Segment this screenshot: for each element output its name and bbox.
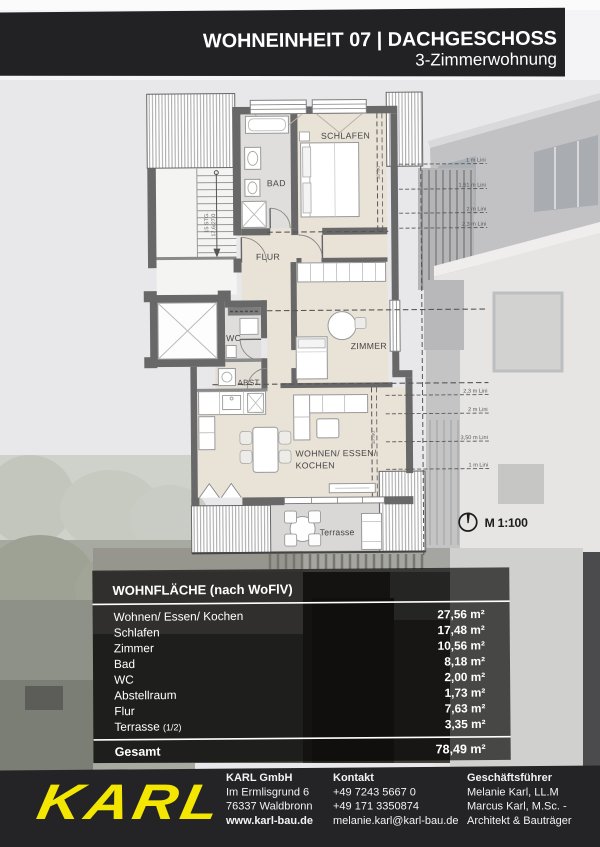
svg-text:Terrasse: Terrasse — [320, 527, 355, 537]
svg-text:Abstellraum: Abstellraum — [114, 688, 177, 702]
svg-text:35°/90: 35°/90 — [371, 431, 376, 445]
svg-text:8,18 m²: 8,18 m² — [444, 654, 485, 668]
svg-text:Melanie Karl, LL.M: Melanie Karl, LL.M — [467, 786, 559, 798]
svg-text:Terrasse (1/2): Terrasse (1/2) — [114, 719, 181, 734]
svg-text:BAD: BAD — [267, 178, 286, 188]
svg-text:WOHNEINHEIT 07 | DACHGESCHOSS: WOHNEINHEIT 07 | DACHGESCHOSS — [203, 28, 557, 53]
svg-text:15 STG.: 15 STG. — [204, 212, 210, 233]
svg-text:Zimmer: Zimmer — [114, 641, 154, 655]
svg-text:1,73 m²: 1,73 m² — [445, 686, 486, 700]
svg-text:17,48 m²: 17,48 m² — [437, 623, 484, 637]
svg-text:Bad: Bad — [114, 657, 135, 671]
svg-text:FLUR: FLUR — [256, 252, 280, 262]
svg-text:WOHNFLÄCHE (nach WoFlV): WOHNFLÄCHE (nach WoFlV) — [112, 582, 292, 598]
svg-text:1 m Lini: 1 m Lini — [466, 158, 486, 164]
svg-text:ZIMMER: ZIMMER — [351, 341, 387, 351]
svg-text:1 m Lini: 1 m Lini — [468, 463, 488, 469]
svg-text:Geschäftsführer: Geschäftsführer — [467, 772, 553, 784]
svg-text:www.karl-bau.de: www.karl-bau.de — [225, 815, 313, 827]
svg-text:KARL GmbH: KARL GmbH — [226, 772, 292, 784]
svg-text:2,3 m Lini: 2,3 m Lini — [463, 389, 487, 395]
svg-text:27,56 m²: 27,56 m² — [437, 607, 484, 621]
svg-text:KARL: KARL — [33, 774, 228, 830]
svg-text:SCHLAFEN: SCHLAFEN — [321, 130, 370, 140]
svg-text:M 1:100: M 1:100 — [485, 516, 529, 530]
svg-text:10,56 m²: 10,56 m² — [438, 638, 485, 652]
svg-text:2,00 m²: 2,00 m² — [444, 670, 485, 684]
svg-text:Im Ermlisgrund 6: Im Ermlisgrund 6 — [226, 786, 309, 798]
svg-text:17,6/27,0: 17,6/27,0 — [211, 214, 217, 237]
svg-text:Architekt & Bauträger: Architekt & Bauträger — [467, 815, 572, 827]
svg-text:Kontakt: Kontakt — [333, 772, 374, 784]
svg-text:WC: WC — [114, 673, 134, 687]
svg-text:Flur: Flur — [114, 704, 134, 718]
svg-text:3-Zimmerwohnung: 3-Zimmerwohnung — [415, 50, 557, 70]
svg-text:7,63 m²: 7,63 m² — [445, 701, 486, 715]
svg-text:76337 Waldbronn: 76337 Waldbronn — [226, 801, 312, 813]
svg-text:3,35 m²: 3,35 m² — [445, 717, 486, 731]
svg-text:melanie.karl@karl-bau.de: melanie.karl@karl-bau.de — [333, 815, 459, 827]
svg-text:KOCHEN: KOCHEN — [296, 460, 335, 470]
svg-text:WOHNEN/ ESSEN/: WOHNEN/ ESSEN/ — [295, 448, 376, 459]
svg-text:35°/90: 35°/90 — [376, 166, 381, 180]
svg-text:2 m Lini: 2 m Lini — [466, 207, 486, 213]
svg-text:2,3 m Lini: 2,3 m Lini — [462, 222, 486, 228]
svg-text:Wohnen/ Essen/ Kochen: Wohnen/ Essen/ Kochen — [114, 609, 244, 624]
svg-text:1,51 m Lini: 1,51 m Lini — [459, 183, 486, 189]
svg-text:2 m Lini: 2 m Lini — [468, 407, 488, 413]
svg-text:Schlafen: Schlafen — [114, 625, 160, 639]
svg-text:WC: WC — [226, 333, 241, 343]
svg-text:+49 171 3350874: +49 171 3350874 — [333, 801, 419, 813]
svg-text:Gesamt: Gesamt — [115, 745, 162, 759]
svg-text:Marcus Karl, M.Sc. -: Marcus Karl, M.Sc. - — [467, 801, 567, 813]
svg-text:ABST.: ABST. — [237, 378, 261, 387]
svg-text:78,49 m²: 78,49 m² — [436, 742, 486, 756]
svg-text:+49 7243 5667 0: +49 7243 5667 0 — [333, 786, 416, 798]
svg-text:3,50 m Lini: 3,50 m Lini — [460, 435, 487, 441]
